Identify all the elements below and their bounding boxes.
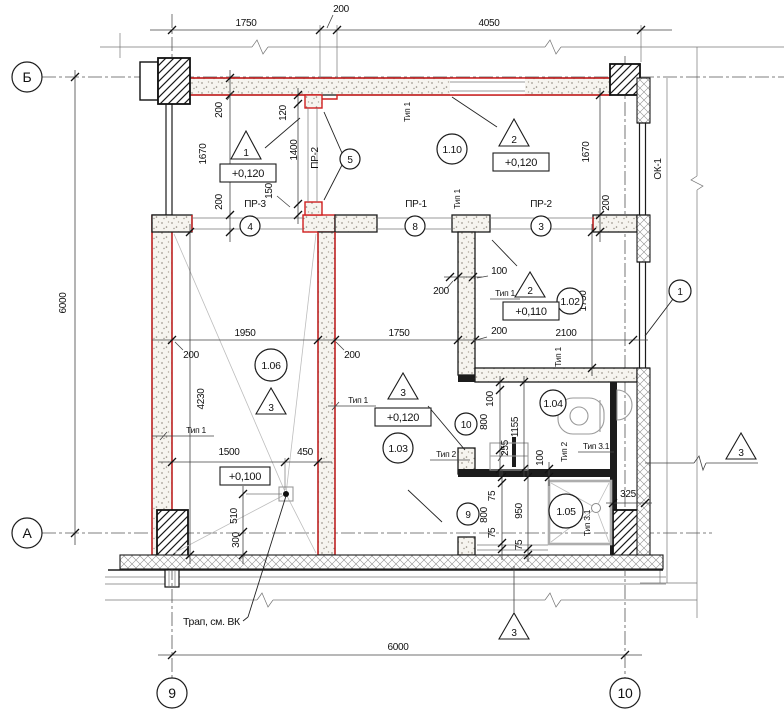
type-label-1-left: Тип 1	[186, 425, 206, 435]
node-label-1: 1	[677, 287, 683, 298]
dim-door-1400: 1400	[289, 139, 300, 161]
axis-label-10: 10	[618, 685, 633, 701]
axis-label-9: 9	[168, 685, 176, 701]
wall-left	[152, 215, 172, 555]
node-label-9: 9	[465, 510, 471, 521]
dim-top-1750: 1750	[235, 18, 257, 29]
node-label-8: 8	[412, 222, 418, 233]
dim-450: 450	[297, 447, 314, 458]
dim-r102-200: 200	[433, 286, 450, 297]
dim-tr-200: 200	[601, 194, 612, 211]
wall-mid-junction	[303, 215, 335, 232]
room-label-102: 1.02	[560, 296, 580, 308]
wall-right-pier	[637, 215, 650, 262]
wall-a-stub-bottom	[305, 202, 322, 215]
type-label-31-b: Тип 3.1	[582, 509, 592, 536]
dim-door-150: 150	[264, 182, 275, 199]
dim-tl-200b: 200	[214, 193, 225, 210]
opening-label-pr1: ПР-1	[405, 199, 427, 210]
dim-top-200: 200	[333, 4, 350, 15]
column-b10	[610, 64, 640, 95]
node-label-4: 4	[247, 222, 253, 233]
dim-mid-200-wall: 200	[491, 326, 508, 337]
wall-top	[172, 78, 610, 95]
slope-mark-3-r103-label: 3	[400, 388, 406, 399]
dim-r102-100: 100	[491, 266, 508, 277]
wall-bath-top	[475, 368, 637, 382]
opening-label-pr3: ПР-3	[244, 199, 266, 210]
dim-mid-200-right: 200	[344, 350, 361, 361]
dim-tl-200: 200	[214, 101, 225, 118]
dim-325: 325	[620, 489, 637, 500]
dim-510: 510	[229, 507, 240, 524]
room-label-110: 1.10	[442, 144, 462, 156]
sink-icon	[617, 390, 632, 420]
wall-half	[512, 437, 516, 467]
node-label-3: 3	[538, 222, 544, 233]
section-mark-3-bottom-label: 3	[511, 628, 517, 639]
dim-bath-950: 950	[514, 502, 525, 519]
type-label-1-top: Тип 1	[402, 102, 412, 122]
opening-label-pr2: ПР-2	[530, 199, 552, 210]
facade-lines	[100, 33, 784, 618]
wall-mid-corner	[152, 215, 192, 232]
slope-mark-2-r102-label: 2	[527, 286, 533, 297]
dim-bath-75b: 75	[487, 527, 498, 538]
opening-label-pr2-door: ПР-2	[310, 146, 321, 168]
wall-c	[458, 232, 475, 375]
wall-c-jamb	[458, 537, 475, 555]
column-outline-tl	[140, 62, 158, 100]
dim-mid-2100: 2100	[555, 328, 577, 339]
floor-plan-canvas: Б А 9 10	[0, 0, 784, 723]
type-label-2-door: Тип 2	[436, 449, 456, 459]
dim-300: 300	[231, 531, 242, 548]
section-mark-3-right-label: 3	[738, 448, 744, 459]
dim-bath-255: 255	[500, 439, 511, 456]
dim-door-120: 120	[278, 104, 289, 121]
dim-tl-1670: 1670	[198, 143, 209, 165]
wall-right-top	[637, 78, 650, 123]
dim-bath-800-bot: 800	[479, 506, 490, 523]
dim-bath-800-top: 800	[479, 413, 490, 430]
elevation-r106: +0,100	[229, 471, 261, 483]
elevation-r110: +0,120	[505, 157, 537, 169]
dim-bath-1155: 1155	[510, 416, 521, 437]
dim-bath-100-mid: 100	[535, 449, 546, 466]
type-label-1-bath: Тип 1	[553, 347, 563, 367]
room-label-104: 1.04	[543, 398, 563, 410]
slope-mark-2-r110-label: 2	[511, 135, 517, 146]
wall-b	[318, 232, 335, 555]
node-label-5: 5	[347, 155, 353, 166]
dim-tr-1670: 1670	[581, 141, 592, 163]
walls	[120, 58, 663, 569]
room-label-106: 1.06	[261, 360, 281, 372]
dim-mid-1950: 1950	[234, 328, 256, 339]
shower-drain-icon	[592, 504, 601, 513]
dim-bath-75a: 75	[487, 490, 498, 501]
room-label-105: 1.05	[556, 506, 576, 518]
axis-label-a: А	[22, 525, 32, 541]
wall-mid-seg3	[452, 215, 490, 232]
dim-top-4050: 4050	[478, 18, 500, 29]
slope-mark-1-label: 1	[243, 148, 249, 159]
elevation-r103: +0,120	[387, 412, 419, 424]
dim-mid-200-left: 200	[183, 350, 200, 361]
type-label-1-mid: Тип 1	[452, 189, 462, 209]
dim-bath-100-top: 100	[485, 390, 496, 407]
wall-bath-partition	[458, 469, 612, 477]
dim-bath-75c: 75	[514, 539, 525, 550]
wall-bottom	[120, 555, 663, 569]
floor-plan-drawing: Б А 9 10	[0, 0, 784, 723]
wall-a-stub-top	[305, 95, 322, 108]
window-label-ok1: ОК-1	[653, 158, 664, 180]
column-b9	[158, 58, 190, 104]
note-trap: Трап, см. ВК	[183, 616, 241, 628]
door-leaf-9	[408, 490, 442, 522]
elevation-r102: +0,110	[515, 306, 547, 318]
dim-bottom-6000: 6000	[387, 642, 409, 653]
axis-label-b: Б	[23, 69, 32, 85]
dim-mid-1750: 1750	[388, 328, 410, 339]
type-label-2-part: Тип 2	[559, 442, 569, 462]
grid-axes: Б А 9 10	[12, 14, 784, 708]
elevation-topleft: +0,120	[232, 168, 264, 180]
node-label-10: 10	[461, 420, 472, 431]
slope-mark-3-r106-label: 3	[268, 403, 274, 414]
type-label-1-wallb: Тип 1	[348, 395, 368, 405]
dim-1500: 1500	[218, 447, 240, 458]
wall-right-bottom	[637, 368, 650, 557]
room-label-103: 1.03	[388, 443, 408, 455]
wall-mid-seg2	[335, 215, 377, 232]
type-label-1-r102: Тип 1	[495, 288, 515, 298]
type-label-31-a: Тип 3.1	[583, 441, 610, 451]
column-a9	[157, 510, 188, 557]
dim-left-6000: 6000	[58, 292, 69, 314]
dim-4230: 4230	[196, 388, 207, 410]
